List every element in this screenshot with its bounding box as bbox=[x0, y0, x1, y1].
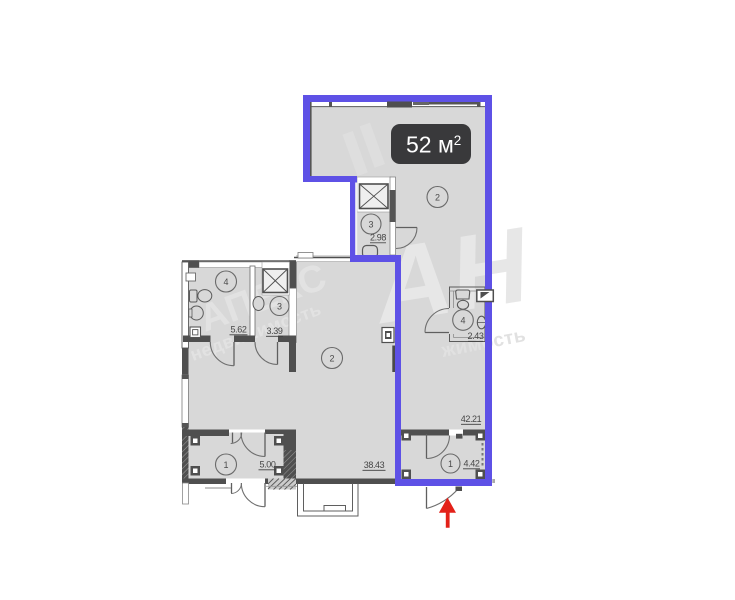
svg-text:2.98: 2.98 bbox=[370, 233, 386, 243]
svg-text:38.43: 38.43 bbox=[364, 460, 385, 470]
svg-text:5.62: 5.62 bbox=[231, 325, 247, 335]
svg-text:2: 2 bbox=[435, 192, 440, 202]
svg-text:2: 2 bbox=[329, 353, 334, 363]
svg-text:4: 4 bbox=[460, 315, 465, 325]
svg-text:4.42: 4.42 bbox=[464, 459, 480, 469]
svg-text:3: 3 bbox=[277, 301, 282, 311]
svg-text:1: 1 bbox=[223, 460, 228, 470]
svg-text:2.43: 2.43 bbox=[468, 331, 484, 341]
svg-text:3.39: 3.39 bbox=[267, 326, 283, 336]
svg-text:5.00: 5.00 bbox=[260, 460, 276, 470]
svg-text:1: 1 bbox=[448, 459, 453, 469]
svg-text:42.21: 42.21 bbox=[461, 414, 482, 424]
svg-text:3: 3 bbox=[368, 219, 373, 229]
svg-text:4: 4 bbox=[223, 277, 228, 287]
svg-text:52 м2: 52 м2 bbox=[406, 132, 461, 158]
